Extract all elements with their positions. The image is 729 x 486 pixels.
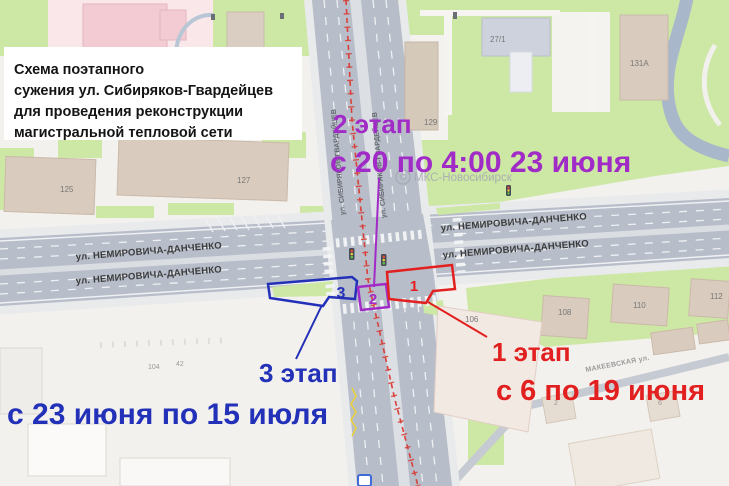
building-label-42: 42: [176, 361, 184, 368]
poi-icon: [280, 13, 284, 19]
title-line-1: Схема поэтапного: [14, 62, 144, 78]
traffic-light-icon: [506, 185, 511, 196]
map-canvas: 125 127 129 27/1 131А 108 110 112 106 10…: [0, 0, 729, 486]
poi-icon: [211, 14, 215, 20]
building-label-108: 108: [558, 308, 572, 317]
stage2-zone-number: 2: [369, 291, 377, 308]
building-label-110: 110: [633, 301, 646, 310]
title-box: Схема поэтапного сужения ул. Сибиряков-Г…: [4, 47, 302, 141]
building-label-112: 112: [710, 292, 723, 301]
stage3-title: 3 этап: [259, 358, 338, 388]
stage2-title: 2 этап: [333, 109, 412, 139]
building-label-27-1: 27/1: [490, 35, 506, 44]
title-line-3: для проведения реконструкции: [14, 104, 243, 120]
stage3-zone-number: 3: [337, 285, 346, 302]
title-line-4: магистральной тепловой сети: [14, 125, 233, 141]
building-label-106: 106: [465, 315, 479, 324]
building-label-131a: 131А: [630, 59, 649, 68]
stage3-dates: с 23 июня по 15 июля: [7, 398, 328, 431]
building-label-129: 129: [424, 118, 438, 127]
poi-icon: [453, 12, 457, 19]
stage1-zone-number: 1: [410, 278, 418, 295]
stage1-title: 1 этап: [492, 337, 571, 367]
building-106: [434, 306, 542, 432]
building-label-125: 125: [60, 185, 74, 194]
stage1-dates: с 6 по 19 июня: [496, 375, 705, 407]
bus-stop-icon: [358, 475, 371, 486]
title-line-2: сужения ул. Сибиряков-Гвардейцев: [14, 83, 273, 99]
building-label-127: 127: [237, 176, 251, 185]
stage2-dates: с 20 по 4:00 23 июня: [330, 146, 631, 179]
pink-quarter: [48, 0, 213, 55]
traffic-light-icon: [349, 248, 355, 260]
building-label-104: 104: [148, 364, 160, 371]
construction-scheme-map: 125 127 129 27/1 131А 108 110 112 106 10…: [0, 0, 729, 486]
traffic-light-icon: [381, 254, 387, 266]
